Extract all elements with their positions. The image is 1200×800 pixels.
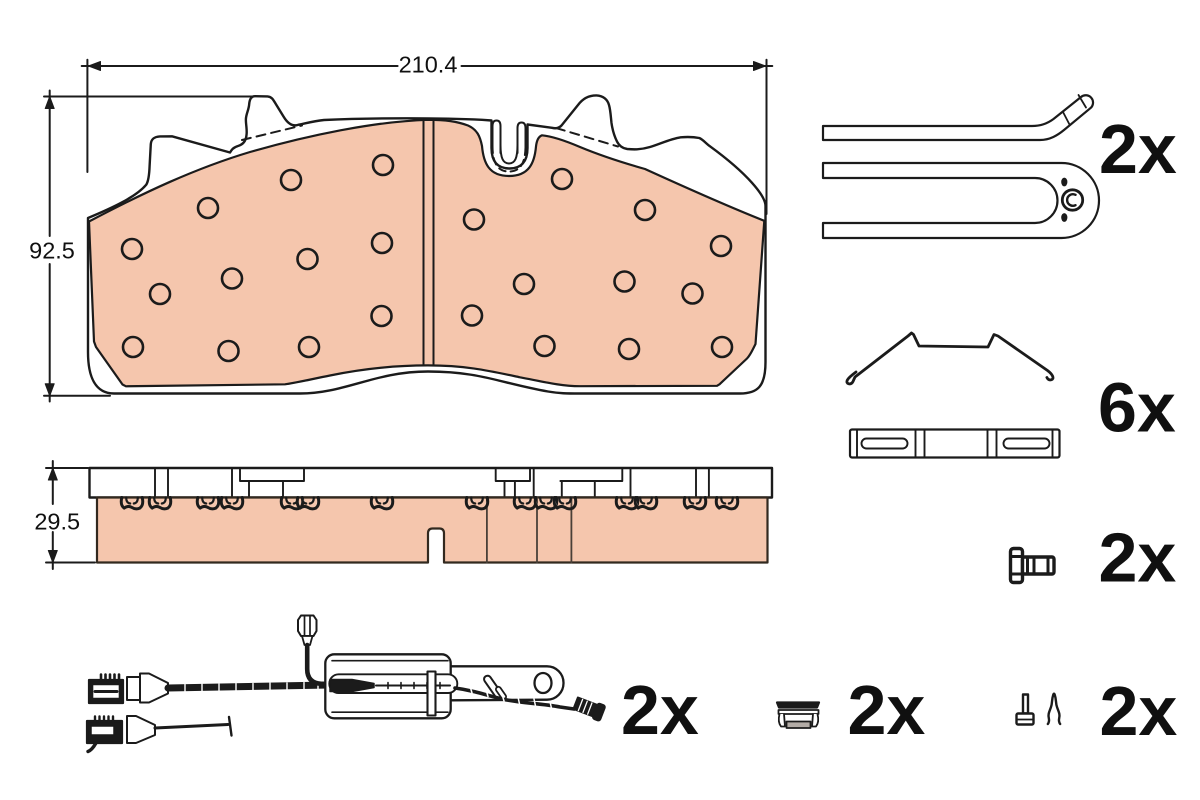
- svg-text:92.5: 92.5: [29, 238, 75, 264]
- svg-text:6x: 6x: [1098, 369, 1176, 447]
- svg-text:2x: 2x: [1099, 110, 1177, 188]
- svg-text:2x: 2x: [621, 671, 699, 749]
- svg-text:210.4: 210.4: [399, 51, 458, 77]
- svg-text:2x: 2x: [1099, 519, 1177, 597]
- svg-text:29.5: 29.5: [34, 509, 80, 535]
- svg-text:2x: 2x: [848, 671, 926, 749]
- svg-text:2x: 2x: [1100, 672, 1178, 750]
